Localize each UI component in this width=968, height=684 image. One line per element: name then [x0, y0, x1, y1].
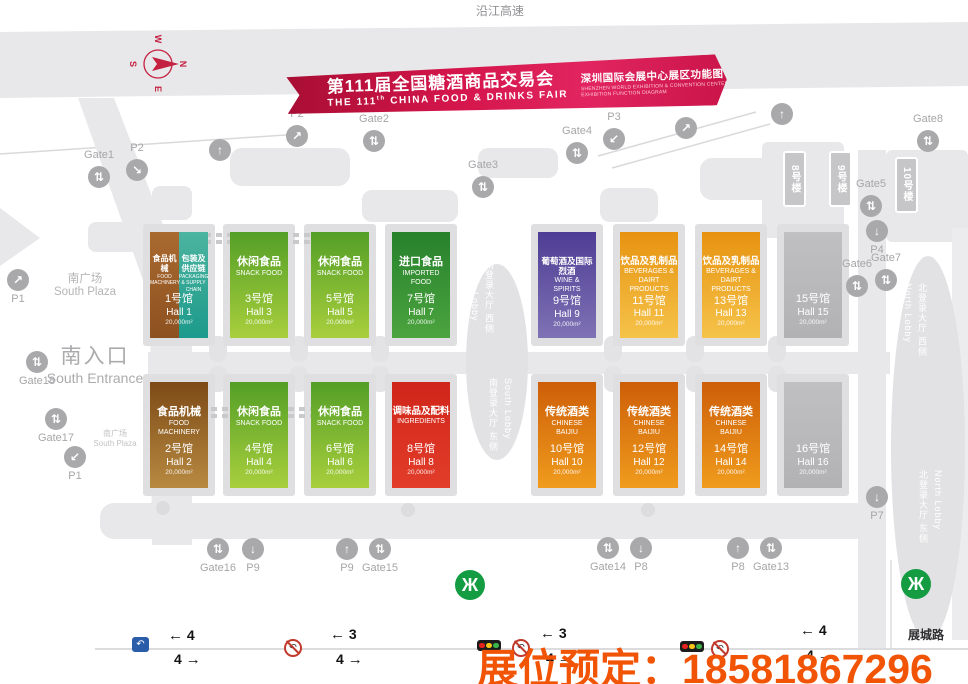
hall-number-en: Hall 3	[230, 307, 288, 319]
hall-number-cn: 4号馆	[230, 443, 288, 457]
hall-id: 6号馆Hall 620,000m²	[311, 443, 369, 488]
arrow-icon: ↘	[132, 163, 142, 177]
arrow-icon: ↗	[13, 273, 23, 287]
hall-number-en: Hall 5	[311, 307, 369, 319]
parking-circle-p3: ↙	[603, 128, 625, 150]
hall-number-en: Hall 6	[311, 457, 369, 469]
north-lobby-west-label: North Lobby 北登录大厅 西侧	[903, 283, 929, 393]
hall-area: 20,000m²	[620, 469, 678, 477]
lane-count-westbound: ← 3	[330, 626, 357, 643]
hall-id: 9号馆Hall 920,000m²	[538, 295, 596, 338]
hall-area: 20,000m²	[311, 469, 369, 477]
direction-circle: ↑	[209, 139, 231, 161]
hall-block-3: 休闲食品SNACK FOOD3号馆Hall 320,000m²	[230, 232, 288, 338]
hall-category: 传统酒类CHINESE BAIJIU	[538, 382, 596, 438]
parking-circle-p4: ↓	[866, 220, 888, 242]
hall-category-en: INGREDIENTS	[392, 417, 450, 427]
gate-circle-gate7-label: Gate7	[851, 252, 921, 264]
arrow-icon: ↙	[609, 132, 619, 146]
highway-label: 沿江高速	[438, 2, 562, 19]
hall-number-cn: 1号馆	[150, 293, 208, 307]
booking-phone-overlay: 展位预定：18581867296	[477, 635, 933, 684]
hall-block-8: 调味品及配料INGREDIENTS8号馆Hall 820,000m²	[392, 382, 450, 488]
gate-circle-gate4-label: Gate4	[542, 125, 612, 137]
gate-circle-gate3: ⇅	[472, 176, 494, 198]
gate-circle-gate2-label: Gate2	[339, 113, 409, 125]
arrow-icon: ⇅	[213, 542, 223, 556]
fair-logo-icon	[317, 77, 318, 111]
hall-id: 14号馆Hall 1420,000m²	[702, 443, 760, 488]
direction-circle: ↗	[675, 117, 697, 139]
hall-category-cn: 进口食品	[392, 256, 450, 269]
arrow-icon: ⇅	[94, 170, 104, 184]
south-lobby-east-label: 南登录大厅 东侧 South Lobby	[487, 378, 513, 478]
hall-number-en: Hall 14	[702, 457, 760, 469]
lane-count-eastbound: 4 →	[174, 651, 201, 668]
south-lobby-west-label: South Lobby 南登录大厅 西侧	[470, 260, 496, 360]
hall-id: 7号馆Hall 720,000m²	[392, 293, 450, 338]
hall-category-en: CHINESE BAIJIU	[702, 419, 760, 438]
arrow-icon: ↗	[681, 121, 691, 135]
hall-number-cn: 2号馆	[150, 443, 208, 457]
arrow-icon: ↑	[344, 542, 350, 556]
hall-category-cn: 饮品及乳制品	[702, 256, 760, 267]
hall-category-en: SNACK FOOD	[311, 269, 369, 279]
hall-area: 20,000m²	[230, 319, 288, 327]
hall-block-16: 16号馆Hall 1620,000m²	[784, 382, 842, 488]
arrow-icon: ⇅	[866, 199, 876, 213]
gate-circle-gate18-label: Gate18	[2, 375, 72, 387]
hall-area: 20,000m²	[702, 469, 760, 477]
hall-id: 10号馆Hall 1020,000m²	[538, 443, 596, 488]
arrow-icon: ↓	[638, 541, 644, 555]
hall-number-en: Hall 2	[150, 457, 208, 469]
arrow-icon: ⇅	[923, 134, 933, 148]
hall-category-cn: 调味品及配料	[392, 406, 450, 417]
hall-block-7: 进口食品IMPORTED FOOD7号馆Hall 720,000m²	[392, 232, 450, 338]
hall-category-cn: 传统酒类	[538, 406, 596, 419]
hall-category-cn: 食品机械	[150, 254, 179, 273]
hall-category: 休闲食品SNACK FOOD	[311, 382, 369, 429]
hall-number-cn: 12号馆	[620, 443, 678, 457]
parking-circle-p2-label: P2	[102, 142, 172, 154]
hall-category-cn: 食品机械	[150, 406, 208, 419]
hall-area: 20,000m²	[784, 319, 842, 327]
hall-id: 1号馆Hall 120,000m²	[150, 293, 208, 338]
hall-number-cn: 16号馆	[784, 443, 842, 457]
compass-w: W	[153, 35, 163, 44]
hall-category	[784, 382, 842, 406]
hall-block-6: 休闲食品SNACK FOOD6号馆Hall 620,000m²	[311, 382, 369, 488]
parking-circle-p9-label: P9	[218, 562, 288, 574]
hall-number-cn: 5号馆	[311, 293, 369, 307]
hall-number-cn: 15号馆	[784, 293, 842, 307]
compass-s: S	[128, 61, 138, 67]
building-8号楼: 8号楼	[783, 151, 806, 207]
hall-id: 8号馆Hall 820,000m²	[392, 443, 450, 488]
metro-station-icon: Ж	[901, 569, 931, 599]
gate-circle-gate15-label: Gate15	[345, 562, 415, 574]
arrow-icon: ⇅	[478, 180, 488, 194]
hall-category: 调味品及配料INGREDIENTS	[392, 382, 450, 427]
hall-category: 传统酒类CHINESE BAIJIU	[620, 382, 678, 438]
hall-id: 4号馆Hall 420,000m²	[230, 443, 288, 488]
arrow-icon: ⇅	[603, 541, 613, 555]
no-uturn-sign-icon: ↶	[284, 639, 302, 657]
arrow-icon: ↑	[779, 107, 785, 121]
hall-category: 休闲食品SNACK FOOD	[230, 382, 288, 429]
hall-block-9: 葡萄酒及国际烈酒WINE & SPIRITS9号馆Hall 920,000m²	[538, 232, 596, 338]
parking-circle-p7-label: P7	[842, 510, 912, 522]
hall-category-right: 包装及供应链PACKAGING & SUPPLY CHAIN	[179, 254, 208, 293]
banner-subtitle: 深圳国际会展中心展区功能图 SHENZHEN WORLD EXHIBITION …	[580, 66, 729, 99]
hall-category-cn: 休闲食品	[230, 406, 288, 419]
hall-category-en: SNACK FOOD	[311, 419, 369, 429]
metro-station-icon: Ж	[455, 570, 485, 600]
hall-category: 休闲食品SNACK FOOD	[311, 232, 369, 279]
hall-category-left: 食品机械FOOD MACHINERY	[150, 254, 179, 293]
parking-circle-p1: ↗	[7, 269, 29, 291]
hall-category-en: IMPORTED FOOD	[392, 269, 450, 288]
gate-circle-gate16: ⇅	[207, 538, 229, 560]
hall-area: 20,000m²	[538, 469, 596, 477]
gate-circle-gate6: ⇅	[846, 275, 868, 297]
arrow-icon: ⇅	[51, 412, 61, 426]
hall-category-cn: 包装及供应链	[179, 254, 208, 273]
hall-number-en: Hall 12	[620, 457, 678, 469]
hall-category	[784, 232, 842, 256]
hall-category-cn: 传统酒类	[620, 406, 678, 419]
hall-category-en: FOOD MACHINERY	[150, 419, 208, 438]
hall-category: 食品机械FOOD MACHINERY	[150, 382, 208, 438]
parking-circle-p7: ↓	[866, 486, 888, 508]
hall-area: 20,000m²	[538, 321, 596, 329]
lane-count-eastbound: 4 →	[336, 651, 363, 668]
hall-number-cn: 6号馆	[311, 443, 369, 457]
hall-number-cn: 9号馆	[538, 295, 596, 309]
hall-number-en: Hall 8	[392, 457, 450, 469]
hall-id: 3号馆Hall 320,000m²	[230, 293, 288, 338]
hall-block-14: 传统酒类CHINESE BAIJIU14号馆Hall 1420,000m²	[702, 382, 760, 488]
parking-circle-p8: ↓	[630, 537, 652, 559]
hall-category: 饮品及乳制品BEVERAGES & DAIRT PRODUCTS	[620, 232, 678, 295]
hall-number-en: Hall 15	[784, 307, 842, 319]
hall-number-en: Hall 7	[392, 307, 450, 319]
gate-circle-gate13-label: Gate13	[736, 561, 806, 573]
hall-area: 20,000m²	[784, 469, 842, 477]
arrow-icon: ↑	[217, 143, 223, 157]
gate-circle-gate8-label: Gate8	[893, 113, 963, 125]
hall-block-4: 休闲食品SNACK FOOD4号馆Hall 420,000m²	[230, 382, 288, 488]
gate-circle-gate17: ⇅	[45, 408, 67, 430]
parking-circle-p2: ↗	[286, 125, 308, 147]
compass-icon: N E S W	[118, 28, 198, 100]
hall-block-12: 传统酒类CHINESE BAIJIU12号馆Hall 1220,000m²	[620, 382, 678, 488]
arrow-icon: ⇅	[369, 134, 379, 148]
hall-category-en: BEVERAGES & DAIRT PRODUCTS	[702, 267, 760, 294]
hall-block-5: 休闲食品SNACK FOOD5号馆Hall 520,000m²	[311, 232, 369, 338]
gate-circle-gate1: ⇅	[88, 166, 110, 188]
hall-block-13: 饮品及乳制品BEVERAGES & DAIRT PRODUCTS13号馆Hall…	[702, 232, 760, 338]
gate-circle-gate4: ⇅	[566, 142, 588, 164]
hall-number-cn: 13号馆	[702, 295, 760, 309]
hall-category-cn: 休闲食品	[311, 406, 369, 419]
hall-category-en: PACKAGING & SUPPLY CHAIN	[179, 273, 208, 293]
arrow-icon: ⇅	[766, 541, 776, 555]
gate-circle-gate14: ⇅	[597, 537, 619, 559]
hall-number-en: Hall 13	[702, 308, 760, 320]
hall-category-en: SNACK FOOD	[230, 269, 288, 279]
hall-area: 20,000m²	[311, 319, 369, 327]
hall-id: 12号馆Hall 1220,000m²	[620, 443, 678, 488]
arrow-icon: ↙	[70, 450, 80, 464]
hall-number-en: Hall 10	[538, 457, 596, 469]
hall-area: 20,000m²	[150, 469, 208, 477]
arrow-icon: ⇅	[852, 279, 862, 293]
hall-id: 16号馆Hall 1620,000m²	[784, 443, 842, 488]
parking-circle-p8: ↑	[727, 537, 749, 559]
uturn-sign-icon: ↶	[132, 637, 149, 652]
hall-category-cn: 饮品及乳制品	[620, 256, 678, 267]
lane-count-westbound: ← 4	[168, 627, 195, 644]
exhibition-map: 沿江高速 N E S W 第111届全国糖酒商品交易会 THE 111th CH…	[0, 0, 968, 684]
hall-number-cn: 7号馆	[392, 293, 450, 307]
hall-category-en: BEVERAGES & DAIRT PRODUCTS	[620, 267, 678, 294]
hall-category-cn: 葡萄酒及国际烈酒	[538, 256, 596, 276]
hall-category-en: CHINESE BAIJIU	[620, 419, 678, 438]
hall-block-11: 饮品及乳制品BEVERAGES & DAIRT PRODUCTS11号馆Hall…	[620, 232, 678, 338]
hall-number-cn: 10号馆	[538, 443, 596, 457]
compass-e: E	[153, 86, 163, 92]
hall-id: 2号馆Hall 220,000m²	[150, 443, 208, 488]
gate-circle-gate13: ⇅	[760, 537, 782, 559]
hall-block-1: 食品机械FOOD MACHINERY包装及供应链PACKAGING & SUPP…	[150, 232, 208, 338]
parking-circle-p1-label: P1	[40, 470, 110, 482]
compass-n: N	[178, 61, 188, 68]
parking-circle-p1-label: P1	[0, 293, 53, 305]
gate-circle-gate5: ⇅	[860, 195, 882, 217]
gate-circle-gate2: ⇅	[363, 130, 385, 152]
hall-category-en: WINE & SPIRITS	[538, 276, 596, 295]
parking-circle-p3-label: P3	[579, 111, 649, 123]
hall-area: 20,000m²	[620, 320, 678, 328]
hall-category-cn: 传统酒类	[702, 406, 760, 419]
hall-category: 进口食品IMPORTED FOOD	[392, 232, 450, 288]
gate-circle-gate15: ⇅	[369, 538, 391, 560]
hall-id: 15号馆Hall 1520,000m²	[784, 293, 842, 338]
hall-block-2: 食品机械FOOD MACHINERY2号馆Hall 220,000m²	[150, 382, 208, 488]
hall-id: 11号馆Hall 1120,000m²	[620, 295, 678, 338]
gate-circle-gate3-label: Gate3	[448, 159, 518, 171]
hall-category: 休闲食品SNACK FOOD	[230, 232, 288, 279]
hall-category: 饮品及乳制品BEVERAGES & DAIRT PRODUCTS	[702, 232, 760, 295]
hall-block-10: 传统酒类CHINESE BAIJIU10号馆Hall 1020,000m²	[538, 382, 596, 488]
hall-number-en: Hall 4	[230, 457, 288, 469]
parking-circle-p9: ↑	[336, 538, 358, 560]
arrow-icon: ↑	[735, 541, 741, 555]
hall-number-cn: 14号馆	[702, 443, 760, 457]
hall-area: 20,000m²	[230, 469, 288, 477]
arrow-icon: ↓	[874, 490, 880, 504]
parking-circle-p9: ↓	[242, 538, 264, 560]
hall-area: 20,000m²	[150, 319, 208, 327]
arrow-icon: ⇅	[572, 146, 582, 160]
arrow-icon: ⇅	[32, 355, 42, 369]
hall-number-en: Hall 11	[620, 308, 678, 320]
hall-number-en: Hall 1	[150, 307, 208, 319]
gate-circle-gate5-label: Gate5	[836, 178, 906, 190]
hall-number-cn: 3号馆	[230, 293, 288, 307]
hall-number-cn: 8号馆	[392, 443, 450, 457]
hall-category: 葡萄酒及国际烈酒WINE & SPIRITS	[538, 232, 596, 295]
parking-circle-p2: ↘	[126, 159, 148, 181]
parking-circle-p1: ↙	[64, 446, 86, 468]
gate-circle-gate7: ⇅	[875, 269, 897, 291]
hall-category-en: SNACK FOOD	[230, 419, 288, 429]
hall-area: 20,000m²	[392, 469, 450, 477]
hall-area: 20,000m²	[702, 320, 760, 328]
hall-category-en: CHINESE BAIJIU	[538, 419, 596, 438]
gate-circle-gate17-label: Gate17	[21, 432, 91, 444]
hall-number-en: Hall 9	[538, 309, 596, 321]
hall-id: 5号馆Hall 520,000m²	[311, 293, 369, 338]
hall-category-cn: 休闲食品	[311, 256, 369, 269]
parking-circle-p8-label: P8	[606, 561, 676, 573]
hall-number-cn: 11号馆	[620, 295, 678, 309]
hall-category: 传统酒类CHINESE BAIJIU	[702, 382, 760, 438]
banner-title: 第111届全国糖酒商品交易会 THE 111th CHINA FOOD & DR…	[327, 70, 569, 110]
hall-categories: 食品机械FOOD MACHINERY包装及供应链PACKAGING & SUPP…	[150, 232, 208, 293]
hall-number-en: Hall 16	[784, 457, 842, 469]
gate-circle-gate8: ⇅	[917, 130, 939, 152]
arrow-icon: ⇅	[375, 542, 385, 556]
hall-block-15: 15号馆Hall 1520,000m²	[784, 232, 842, 338]
hall-category-en: FOOD MACHINERY	[150, 273, 179, 287]
hall-area: 20,000m²	[392, 319, 450, 327]
arrow-icon: ↓	[250, 542, 256, 556]
hall-category-cn: 休闲食品	[230, 256, 288, 269]
arrow-icon: ↗	[292, 129, 302, 143]
gate-circle-gate18: ⇅	[26, 351, 48, 373]
arrow-icon: ↓	[874, 224, 880, 238]
north-lobby-east-label: 北登录大厅 东侧 North Lobby	[917, 470, 943, 580]
hall-id: 13号馆Hall 1320,000m²	[702, 295, 760, 338]
direction-circle: ↑	[771, 103, 793, 125]
arrow-icon: ⇅	[881, 273, 891, 287]
